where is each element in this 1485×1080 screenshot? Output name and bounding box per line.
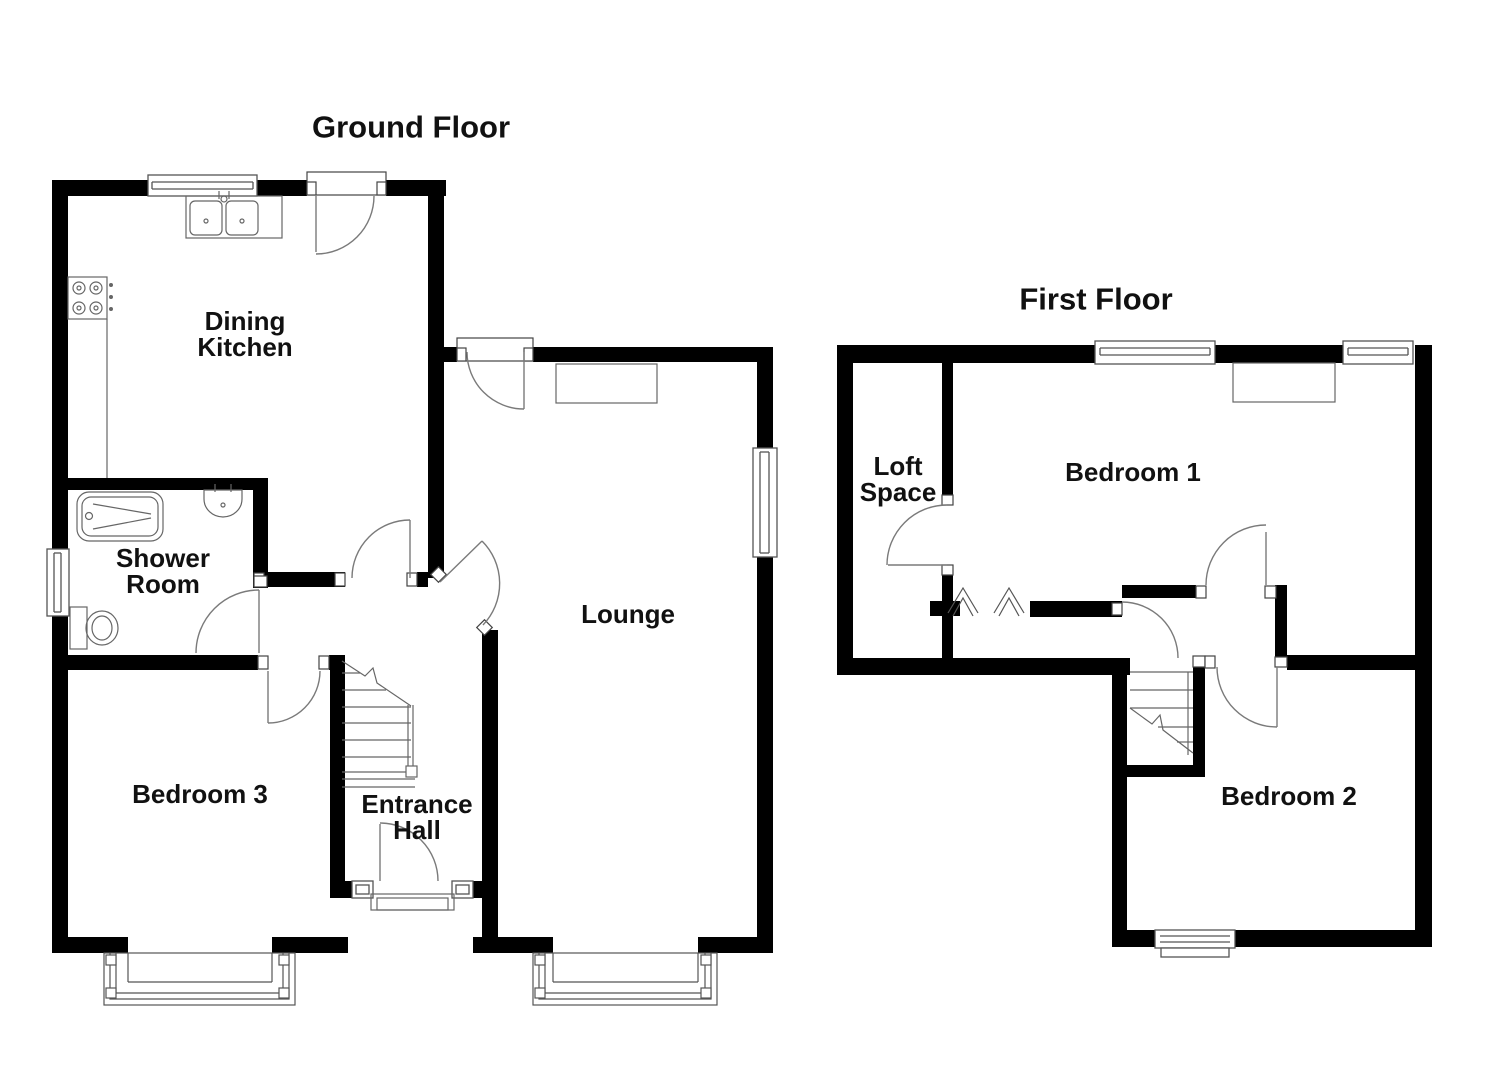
hob-icon xyxy=(68,277,112,319)
door-jamb xyxy=(307,182,316,195)
door-jamb xyxy=(1196,586,1206,598)
bath-icon xyxy=(77,492,163,541)
wall xyxy=(837,658,1130,675)
door-loft-space xyxy=(887,505,947,565)
window-lounge-icon xyxy=(753,448,777,557)
window-bedroom1-left-icon xyxy=(1095,341,1215,364)
door-kitchen-rear xyxy=(316,196,374,254)
room-label-line: Shower xyxy=(116,545,210,571)
window-shower-room-icon xyxy=(47,549,69,616)
wall xyxy=(428,196,444,578)
wall xyxy=(1415,345,1432,947)
door-jamb xyxy=(1112,603,1122,615)
bay-windows xyxy=(104,953,717,1005)
room-label-loft-space: Loft Space xyxy=(860,453,937,505)
room-label-line: Kitchen xyxy=(197,334,292,360)
door-jamb xyxy=(407,573,417,586)
wall xyxy=(428,347,457,362)
bay-window-lounge-icon xyxy=(533,953,717,1005)
walls xyxy=(52,180,1432,953)
door-landing-arc xyxy=(1122,602,1178,658)
room-label-line: Hall xyxy=(361,817,472,843)
windows xyxy=(47,175,1413,957)
door-lounge-diagonal xyxy=(440,541,500,625)
door-recess xyxy=(457,338,533,361)
sidelight-left-icon xyxy=(352,881,373,898)
floorplan-geometry xyxy=(0,0,1485,1080)
porch-step-icon xyxy=(371,894,454,910)
door-jamb xyxy=(1265,586,1276,598)
wall xyxy=(1287,655,1415,670)
wall xyxy=(482,630,498,953)
room-label-line: Room xyxy=(116,571,210,597)
room-label-line: Dining xyxy=(197,308,292,334)
room-label-bedroom3: Bedroom 3 xyxy=(132,781,268,807)
door-jamb xyxy=(319,656,329,669)
wall xyxy=(837,345,853,675)
wall xyxy=(473,881,498,898)
sidelight-right-icon xyxy=(452,881,473,898)
room-label-line: Space xyxy=(860,479,937,505)
wall xyxy=(386,180,446,196)
door-jamb xyxy=(524,348,533,361)
door-bedroom3 xyxy=(268,671,320,723)
wall xyxy=(533,347,773,362)
room-label-line: Loft xyxy=(860,453,937,479)
floorplan-canvas: Ground Floor First Floor Dining Kitchen … xyxy=(0,0,1485,1080)
wall xyxy=(1215,345,1343,363)
ground-floor-title: Ground Floor xyxy=(312,112,510,143)
door-jamb xyxy=(335,573,345,586)
door-jamb xyxy=(1205,656,1215,668)
wall xyxy=(417,572,428,587)
wall xyxy=(1112,765,1205,777)
wall xyxy=(1122,585,1196,598)
wall xyxy=(942,363,953,495)
bay-window-bedroom3-icon xyxy=(104,953,295,1005)
wardrobe-icon xyxy=(1233,363,1335,402)
room-label-bedroom1: Bedroom 1 xyxy=(1065,459,1201,485)
door-jamb xyxy=(1275,657,1287,667)
wall xyxy=(330,655,345,898)
toilet-icon xyxy=(70,607,118,649)
door-jamb xyxy=(942,495,953,505)
door-jamb xyxy=(377,182,386,195)
window-bedroom1-right-icon xyxy=(1343,341,1413,364)
fireplace-icon xyxy=(556,364,657,403)
room-label-bedroom2: Bedroom 2 xyxy=(1221,783,1357,809)
door-kitchen-from-hall xyxy=(352,520,410,578)
wall xyxy=(942,575,953,658)
door-shower-room xyxy=(196,590,259,653)
room-label-entrance-hall: Entrance Hall xyxy=(361,791,472,843)
wall xyxy=(698,937,773,953)
kitchen-sink-icon xyxy=(186,191,282,238)
wall xyxy=(257,180,307,196)
door-bedroom2 xyxy=(1217,667,1277,727)
room-label-shower-room: Shower Room xyxy=(116,545,210,597)
door-jamb xyxy=(254,576,267,587)
wall xyxy=(1275,585,1287,657)
wall xyxy=(272,937,348,953)
door-jamb xyxy=(942,565,953,575)
wall xyxy=(253,478,268,588)
door-jamb xyxy=(1193,656,1205,667)
window-bedroom2-icon xyxy=(1155,930,1235,957)
wall xyxy=(757,347,773,953)
wall xyxy=(930,601,960,616)
room-label-line: Entrance xyxy=(361,791,472,817)
staircase-first-icon xyxy=(1130,672,1193,755)
wall xyxy=(1193,667,1205,765)
room-label-dining-kitchen: Dining Kitchen xyxy=(197,308,292,360)
wall xyxy=(837,345,1095,363)
wall xyxy=(52,655,258,670)
room-label-lounge: Lounge xyxy=(581,601,675,627)
first-floor-title: First Floor xyxy=(1019,284,1172,315)
staircase-ground-icon xyxy=(342,661,417,787)
wall xyxy=(1112,930,1155,947)
wall xyxy=(1112,675,1127,947)
wall xyxy=(52,937,128,953)
window-kitchen-icon xyxy=(148,175,257,196)
door-bedroom1 xyxy=(1206,525,1266,585)
wall xyxy=(52,478,268,490)
wall xyxy=(1030,601,1122,617)
door-jamb xyxy=(457,348,466,361)
door-recess xyxy=(307,172,386,195)
wall xyxy=(1235,930,1432,947)
wall xyxy=(330,881,352,898)
door-jamb xyxy=(258,656,268,669)
